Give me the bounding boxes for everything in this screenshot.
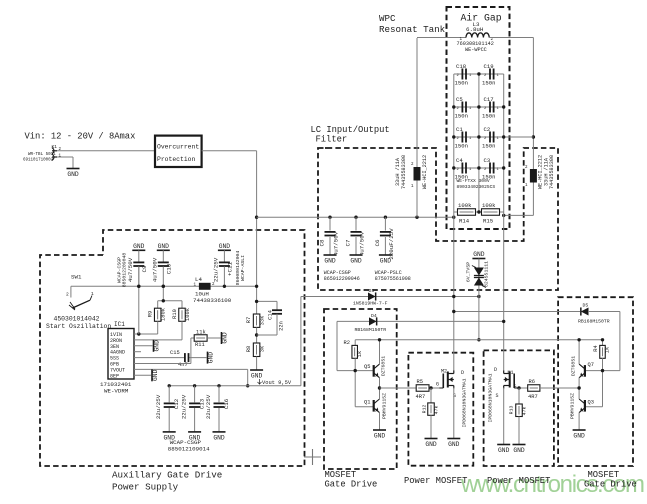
svg-text:GND: GND (448, 441, 460, 448)
svg-text:G: G (514, 384, 517, 390)
svg-text:2: 2 (66, 292, 69, 298)
svg-text:R10: R10 (172, 309, 178, 319)
svg-text:885012109014: 885012109014 (168, 446, 210, 453)
svg-text:R11: R11 (195, 342, 205, 348)
svg-text:GND: GND (425, 441, 437, 448)
svg-text:LC Input/Output: LC Input/Output (311, 125, 390, 135)
svg-text:R4: R4 (593, 345, 599, 351)
svg-text:D: D (461, 370, 464, 376)
svg-text:GND: GND (158, 243, 170, 250)
svg-text:C17: C17 (484, 96, 494, 103)
svg-text:C19: C19 (484, 63, 494, 70)
svg-text:S: S (496, 393, 499, 399)
svg-text:150n: 150n (455, 80, 468, 87)
svg-text:GND: GND (154, 340, 161, 352)
svg-text:6V_TVSP: 6V_TVSP (466, 262, 472, 282)
svg-text:22u/25V: 22u/25V (155, 394, 162, 419)
svg-text:C9: C9 (141, 265, 148, 272)
svg-text:GND: GND (324, 258, 336, 265)
svg-text:8EP: 8EP (110, 373, 119, 379)
svg-text:150n: 150n (482, 143, 495, 150)
svg-text:G: G (436, 382, 439, 388)
svg-text:IPD068N10N3GATMA1: IPD068N10N3GATMA1 (462, 378, 468, 427)
svg-text:R5: R5 (417, 379, 423, 385)
svg-text:875075561008: 875075561008 (375, 276, 411, 282)
svg-text:100k: 100k (482, 202, 496, 209)
svg-text:74435583300: 74435583300 (401, 155, 407, 189)
svg-text:IPD068N10N3GATMA1: IPD068N10N3GATMA1 (488, 373, 494, 422)
svg-text:865012209046: 865012209046 (324, 276, 360, 282)
svg-text:Resonat Tank: Resonat Tank (379, 24, 446, 35)
svg-text:GND: GND (573, 433, 585, 440)
svg-text:C3: C3 (484, 157, 491, 164)
svg-text:R6: R6 (529, 379, 535, 385)
svg-text:R13: R13 (509, 406, 515, 415)
svg-text:Vin: 12 - 20V / 8Amax: Vin: 12 - 20V / 8Amax (25, 132, 136, 142)
svg-text:4u7/50V: 4u7/50V (127, 257, 134, 282)
svg-text:D3: D3 (369, 288, 375, 294)
svg-text:PBHV9115Z: PBHV9115Z (381, 393, 387, 419)
svg-text:11k: 11k (196, 330, 206, 336)
svg-text:GND: GND (513, 447, 525, 454)
svg-text:GND: GND (374, 433, 386, 440)
svg-text:C5: C5 (456, 96, 463, 103)
svg-text:Gate Drive: Gate Drive (325, 480, 378, 490)
svg-text:22n: 22n (279, 321, 285, 331)
svg-text:47k: 47k (434, 406, 440, 415)
svg-text:+C11: +C11 (226, 262, 233, 276)
svg-text:6.8uH: 6.8uH (466, 26, 484, 33)
svg-text:K1: K1 (52, 144, 58, 150)
svg-text:22u/25V: 22u/25V (205, 394, 212, 419)
svg-text:D4: D4 (371, 313, 377, 319)
svg-text:WCAP-ASLI: WCAP-ASLI (240, 255, 246, 281)
svg-text:R9: R9 (148, 311, 154, 317)
svg-text:GND: GND (350, 258, 362, 265)
svg-text:150n: 150n (482, 113, 495, 120)
svg-text:R15: R15 (483, 218, 493, 225)
svg-text:150n: 150n (482, 80, 495, 87)
svg-text:C6: C6 (374, 239, 381, 246)
svg-text:1N5819HW-7-F: 1N5819HW-7-F (353, 301, 388, 307)
svg-text:Vout 9,5V: Vout 9,5V (262, 380, 292, 386)
svg-text:150n: 150n (455, 113, 468, 120)
svg-text:GND: GND (498, 447, 510, 454)
svg-text:WE-FTXX 300V: WE-FTXX 300V (457, 178, 490, 184)
svg-text:GND: GND (67, 171, 79, 178)
svg-text:824551111: 824551111 (484, 261, 490, 287)
svg-text:885012209048: 885012209048 (122, 253, 128, 288)
svg-text:150n: 150n (455, 143, 468, 150)
svg-text:1k: 1k (357, 351, 363, 357)
svg-text:33k: 33k (260, 316, 266, 326)
svg-text:D5: D5 (583, 303, 589, 309)
svg-text:GND: GND (133, 243, 145, 250)
svg-text:4u7/50V: 4u7/50V (151, 257, 158, 282)
svg-text:C4: C4 (456, 157, 463, 164)
svg-text:Q7: Q7 (588, 362, 594, 368)
svg-text:R12: R12 (422, 405, 428, 414)
svg-text:RB168M150TR: RB168M150TR (578, 319, 610, 325)
svg-text:RB168M150TR: RB168M150TR (355, 327, 387, 333)
svg-text:Gate Drive: Gate Drive (584, 480, 637, 490)
svg-text:890334023025CS: 890334023025CS (457, 184, 496, 190)
svg-text:Q3: Q3 (588, 400, 594, 406)
svg-text:4u7/50V: 4u7/50V (359, 231, 366, 256)
svg-text:Start Oszillation: Start Oszillation (46, 323, 111, 330)
svg-text:C18: C18 (456, 63, 466, 70)
svg-text:GND: GND (222, 332, 229, 344)
svg-text:R2: R2 (344, 340, 350, 346)
svg-text:C16: C16 (223, 398, 230, 409)
svg-text:Protection: Protection (157, 156, 196, 163)
svg-text:PBHV9115Z: PBHV9115Z (570, 393, 576, 419)
svg-text:1: 1 (91, 291, 94, 297)
svg-text:GND: GND (208, 352, 215, 364)
svg-text:4n7: 4n7 (178, 362, 188, 368)
svg-text:4R7: 4R7 (528, 394, 538, 400)
svg-text:C2: C2 (484, 126, 491, 133)
svg-text:Power MOSFET: Power MOSFET (487, 476, 550, 486)
svg-text:C7: C7 (345, 239, 352, 246)
svg-text:74435583300: 74435583300 (549, 155, 555, 189)
svg-text:C12: C12 (173, 398, 180, 409)
svg-text:WE-WPCC: WE-WPCC (465, 47, 487, 53)
svg-text:M1: M1 (508, 370, 514, 376)
svg-text:C1: C1 (456, 126, 463, 133)
svg-text:GND: GND (213, 434, 225, 441)
svg-text:Auxillary Gate Drive: Auxillary Gate Drive (112, 470, 222, 481)
svg-text:C10: C10 (165, 263, 172, 274)
svg-text:Overcurrent: Overcurrent (157, 144, 199, 151)
svg-text:C14: C14 (268, 310, 274, 320)
svg-text:GND: GND (251, 373, 263, 380)
svg-text:WE-VDRM: WE-VDRM (104, 388, 129, 395)
svg-text:GND: GND (473, 251, 485, 258)
svg-text:L4: L4 (195, 276, 202, 283)
svg-text:100k: 100k (458, 202, 472, 209)
svg-text:Q5: Q5 (364, 364, 370, 370)
svg-text:Power MOSFET: Power MOSFET (404, 476, 467, 486)
svg-text:47k: 47k (522, 407, 528, 416)
svg-text:Power Supply: Power Supply (112, 482, 179, 493)
svg-text:4R7: 4R7 (416, 394, 426, 400)
svg-text:WPC: WPC (379, 13, 396, 24)
svg-text:WE-HCI_2212: WE-HCI_2212 (422, 155, 428, 189)
svg-text:22u/25V: 22u/25V (212, 257, 219, 282)
svg-text:22u/25V: 22u/25V (181, 394, 188, 419)
svg-text:GND: GND (152, 369, 159, 381)
svg-text:74438336100: 74438336100 (193, 297, 232, 304)
svg-text:Filter: Filter (316, 135, 348, 145)
svg-text:100k: 100k (185, 308, 191, 321)
svg-text:MOSFET: MOSFET (325, 470, 357, 480)
svg-text:691101710002: 691101710002 (23, 159, 54, 163)
svg-text:C8: C8 (319, 239, 326, 246)
svg-text:D: D (494, 367, 497, 373)
svg-text:R14: R14 (459, 218, 470, 225)
svg-text:220uF/25V: 220uF/25V (388, 228, 395, 260)
svg-text:MOSFET: MOSFET (588, 470, 620, 480)
svg-text:C15: C15 (170, 350, 180, 356)
svg-text:180k: 180k (161, 308, 167, 321)
svg-text:Q1: Q1 (364, 400, 370, 406)
svg-text:IC1: IC1 (114, 321, 125, 328)
svg-text:Air Gap: Air Gap (461, 13, 502, 24)
svg-text:M2: M2 (441, 369, 447, 375)
svg-text:GND: GND (219, 243, 231, 250)
svg-text:DZT6851: DZT6851 (380, 356, 386, 376)
svg-text:4u7/50V: 4u7/50V (333, 231, 340, 256)
svg-text:450301014042: 450301014042 (54, 316, 100, 323)
svg-text:1k: 1k (605, 347, 611, 353)
svg-text:3k: 3k (260, 346, 266, 352)
svg-text:DZT6851: DZT6851 (571, 356, 577, 376)
svg-text:R8: R8 (246, 346, 252, 352)
svg-text:SW1: SW1 (71, 274, 82, 281)
svg-text:R7: R7 (246, 317, 252, 323)
